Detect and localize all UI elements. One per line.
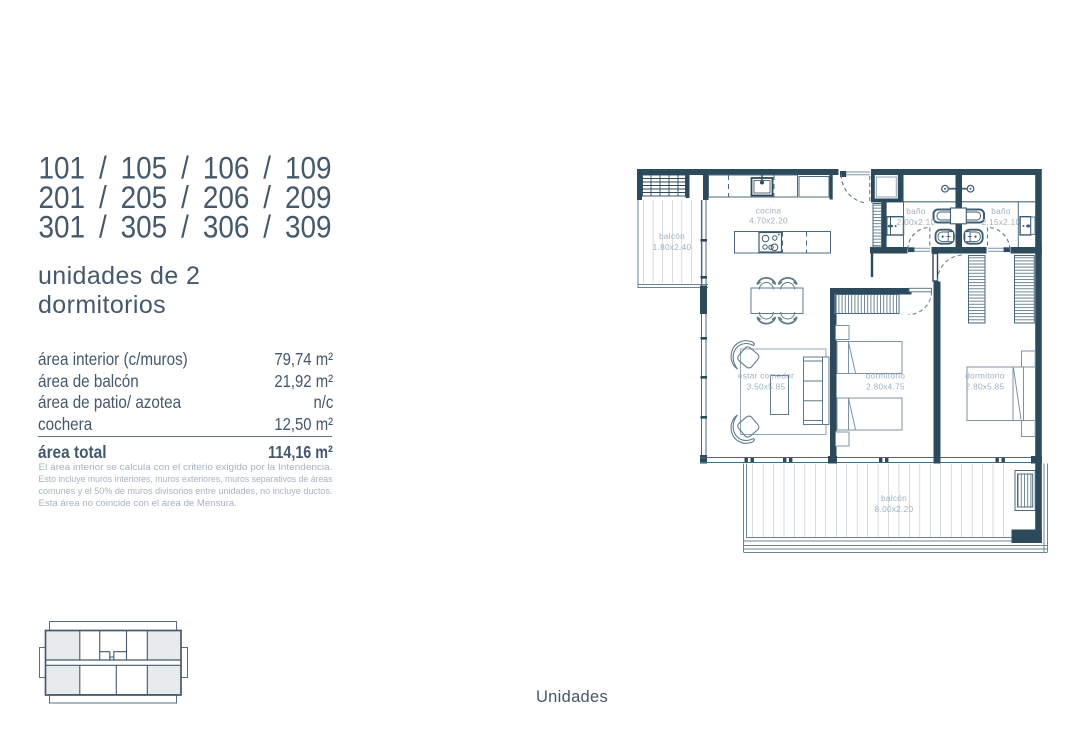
svg-text:2.80x5.85: 2.80x5.85 — [966, 383, 1005, 392]
svg-text:balcón: balcón — [881, 494, 907, 503]
svg-text:2.15x2.10: 2.15x2.10 — [982, 218, 1021, 227]
svg-text:3.50x5.85: 3.50x5.85 — [747, 383, 786, 392]
svg-text:dormitorio: dormitorio — [866, 372, 906, 381]
svg-text:balcón: balcón — [659, 232, 685, 241]
svg-text:estar comedor: estar comedor — [738, 372, 794, 381]
svg-text:dormitorio: dormitorio — [965, 372, 1005, 381]
svg-text:2.00x2.10: 2.00x2.10 — [897, 218, 936, 227]
svg-text:baño: baño — [991, 207, 1011, 216]
svg-text:2.80x4.75: 2.80x4.75 — [866, 383, 905, 392]
svg-text:baño: baño — [906, 207, 926, 216]
svg-text:cocina: cocina — [756, 207, 782, 216]
svg-text:4,70x2.20: 4,70x2.20 — [749, 217, 788, 226]
svg-text:1.80x2.40: 1.80x2.40 — [653, 243, 692, 252]
svg-text:8.00x2.20: 8.00x2.20 — [875, 505, 914, 514]
